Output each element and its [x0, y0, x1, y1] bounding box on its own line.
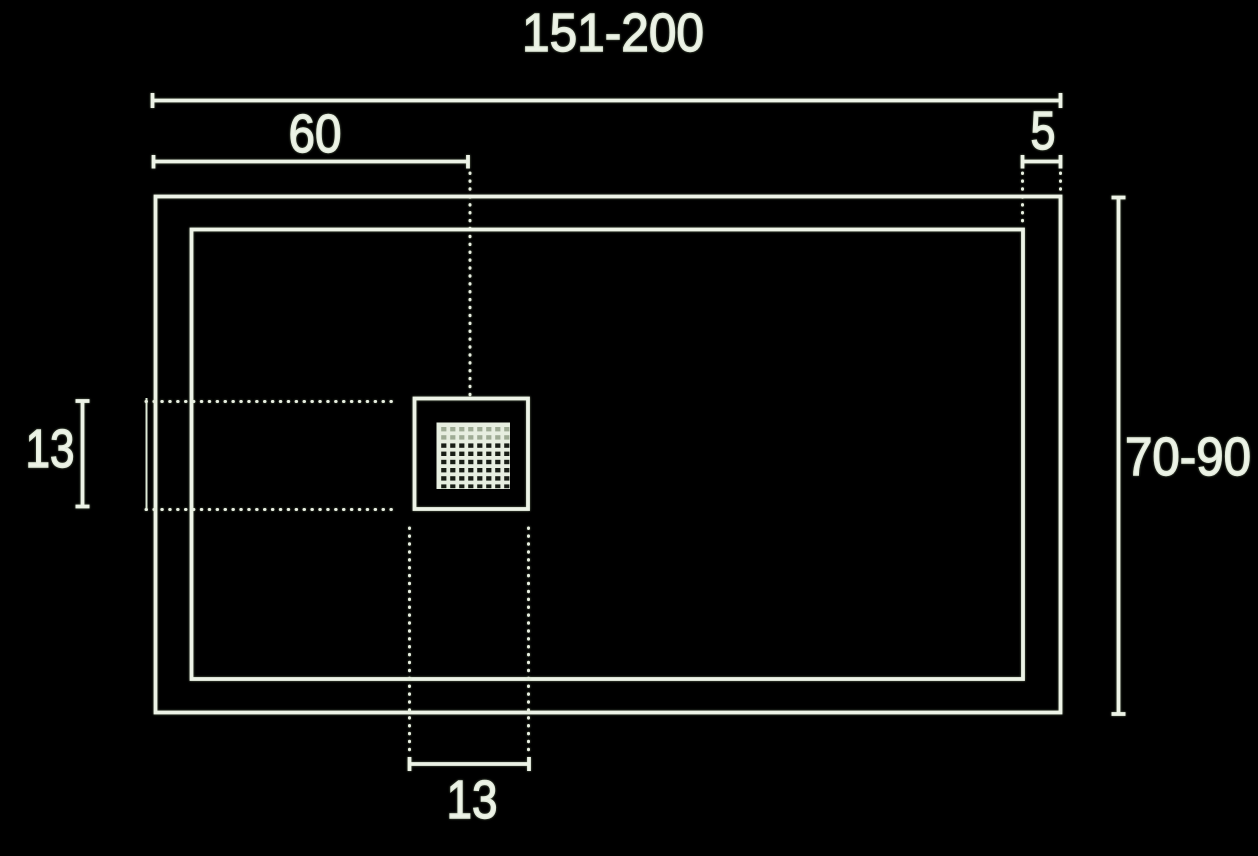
svg-text:5: 5 — [1031, 101, 1056, 161]
svg-text:13: 13 — [26, 419, 75, 479]
svg-text:70-90: 70-90 — [1125, 427, 1251, 487]
svg-text:13: 13 — [447, 770, 498, 830]
svg-text:151-200: 151-200 — [522, 3, 704, 63]
svg-text:60: 60 — [289, 104, 342, 164]
